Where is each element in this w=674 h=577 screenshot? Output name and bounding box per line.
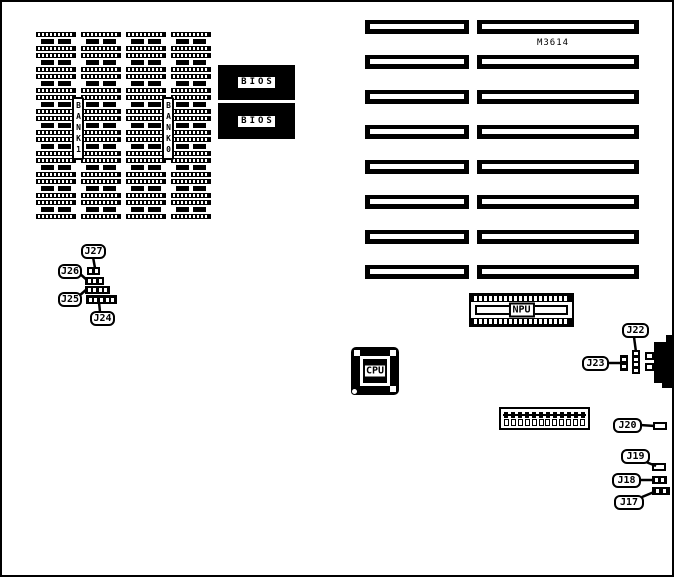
jumper-pin [111, 298, 114, 302]
jumper-pin [661, 478, 664, 482]
jumper-pin [95, 269, 98, 273]
jumper-pin-block-j22 [632, 350, 640, 374]
jumper-pin [634, 369, 638, 372]
jumper-pin [663, 489, 666, 493]
jumper-pin-block-j23 [620, 355, 628, 371]
jumper-pin [655, 478, 658, 482]
motherboard-diagram: BANK1 BANK0 BIOS BIOS M3614 NPU CPU [0, 0, 674, 577]
jumper-pin [93, 288, 96, 292]
jumper-pin [106, 298, 109, 302]
jumper-pin [89, 269, 92, 273]
jumper-pin [634, 352, 638, 355]
jumper-pin [94, 298, 97, 302]
jumper-pin [89, 298, 92, 302]
jumper-pin [99, 288, 102, 292]
jumper-pin-block-j25 [85, 286, 110, 294]
jumper-pin [104, 288, 107, 292]
jumper-label-j24: J24 [90, 311, 115, 326]
jumper-label-j25: J25 [58, 292, 82, 307]
jumper-pin [622, 365, 626, 368]
jumper-pin [93, 279, 96, 283]
jumper-pin [656, 489, 659, 493]
jumper-label-j26: J26 [58, 264, 82, 279]
jumper-pin-block-j24 [86, 295, 117, 304]
jumper-pin [99, 279, 102, 283]
jumper-label-j22: J22 [622, 323, 649, 338]
jumper-pin [88, 288, 91, 292]
bank1-label: BANK1 [72, 97, 84, 160]
jumper-pin [100, 298, 103, 302]
jumper-pin [634, 358, 638, 361]
jumper-label-j17: J17 [614, 495, 644, 510]
jumper-label-j19: J19 [621, 449, 650, 464]
callout-pointer-j20 [640, 425, 655, 426]
jumper-pin-block-j26 [85, 277, 104, 285]
jumper-pin [634, 363, 638, 366]
jumper-pin-block-j17 [652, 487, 670, 495]
jumper-label-j23: J23 [582, 356, 609, 371]
bank0-label: BANK0 [162, 97, 174, 160]
jumper-label-j18: J18 [612, 473, 641, 488]
jumper-label-j27: J27 [81, 244, 106, 259]
jumper-pin-block-j27 [87, 267, 100, 275]
jumper-pin [88, 279, 91, 283]
jumper-pin-block-j18 [652, 476, 667, 484]
jumper-pin [622, 358, 626, 361]
jumper-label-j20: J20 [613, 418, 642, 433]
